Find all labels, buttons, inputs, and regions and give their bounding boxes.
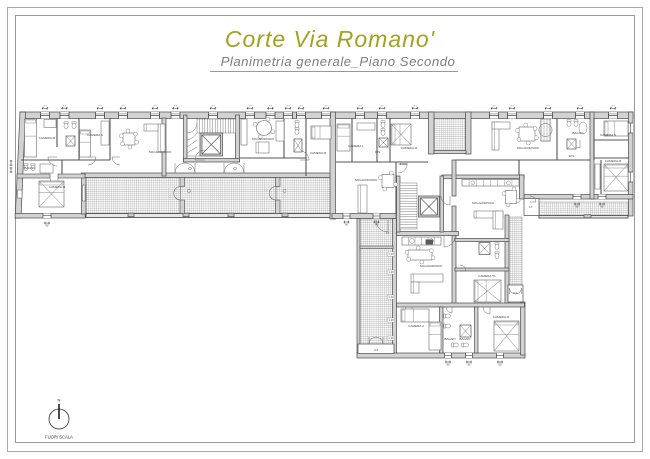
svg-text:1,10: 1,10	[388, 336, 394, 340]
svg-text:CAMERA M: CAMERA M	[49, 185, 66, 189]
svg-text:CAMERA S: CAMERA S	[87, 133, 103, 137]
svg-text:90: 90	[46, 225, 49, 228]
svg-text:1,10: 1,10	[388, 270, 394, 274]
svg-text:CAMERA L: CAMERA L	[348, 144, 364, 148]
svg-text:CAMERA M: CAMERA M	[605, 159, 622, 163]
svg-text:BAGNO: BAGNO	[572, 131, 584, 135]
svg-text:C3: C3	[374, 348, 378, 352]
svg-text:1,5: 1,5	[269, 105, 273, 107]
svg-text:CAMERA S: CAMERA S	[600, 133, 616, 137]
svg-text:1,5: 1,5	[510, 105, 514, 107]
svg-text:1,5: 1,5	[611, 105, 615, 107]
svg-text:BAGNO: BAGNO	[24, 166, 36, 170]
svg-text:1,5: 1,5	[174, 105, 178, 107]
svg-text:C2: C2	[513, 291, 517, 295]
svg-text:1,5: 1,5	[380, 105, 384, 107]
svg-text:1,5: 1,5	[63, 105, 67, 107]
svg-text:LT: LT	[386, 231, 389, 235]
svg-text:1,10: 1,10	[388, 318, 394, 322]
svg-text:SOGGIORNO/K: SOGGIORNO/K	[355, 178, 378, 182]
svg-text:CAMERA M: CAMERA M	[401, 146, 418, 150]
svg-text:BAGNO: BAGNO	[459, 337, 471, 341]
svg-text:1,10: 1,10	[388, 252, 394, 256]
svg-text:FUORI SCALA: FUORI SCALA	[45, 435, 73, 440]
svg-text:N: N	[58, 398, 61, 403]
svg-text:1,5: 1,5	[211, 105, 215, 107]
svg-text:CAMERA M: CAMERA M	[493, 315, 510, 319]
svg-text:CAMERA M: CAMERA M	[310, 151, 327, 155]
svg-text:1,5: 1,5	[248, 105, 252, 107]
svg-text:SOGGIORNO/K: SOGGIORNO/K	[517, 146, 540, 150]
svg-text:SOGGIORNO/K: SOGGIORNO/K	[149, 150, 172, 154]
svg-text:1,5: 1,5	[324, 105, 328, 107]
svg-text:1,5: 1,5	[153, 105, 157, 107]
svg-text:90: 90	[499, 364, 502, 367]
svg-text:90: 90	[468, 364, 471, 367]
svg-text:1,5: 1,5	[492, 105, 496, 107]
svg-text:CAMERA T1: CAMERA T1	[478, 274, 496, 278]
svg-text:LT: LT	[529, 205, 532, 209]
svg-text:DIS.: DIS.	[569, 154, 575, 158]
svg-text:DIS.: DIS.	[375, 150, 381, 154]
svg-text:CAMERA 2: CAMERA 2	[408, 324, 424, 328]
svg-text:1,5: 1,5	[358, 105, 362, 107]
svg-text:SOGGIORNO/K: SOGGIORNO/K	[420, 264, 443, 268]
svg-text:1,5: 1,5	[98, 105, 102, 107]
svg-text:1,10: 1,10	[388, 295, 394, 299]
svg-text:1,5: 1,5	[121, 105, 125, 107]
svg-text:INGR.: INGR.	[400, 162, 409, 166]
svg-text:1,5: 1,5	[578, 105, 582, 107]
svg-text:CAMERA M: CAMERA M	[39, 136, 56, 140]
svg-text:SOGGIORNO/K: SOGGIORNO/K	[472, 201, 495, 205]
svg-text:SOGGIORNO/K: SOGGIORNO/K	[252, 137, 275, 141]
svg-text:90: 90	[345, 224, 348, 227]
svg-text:90: 90	[447, 364, 450, 367]
svg-text:1,5: 1,5	[413, 105, 417, 107]
svg-text:1,5: 1,5	[546, 105, 550, 107]
svg-text:BAGNO: BAGNO	[444, 337, 456, 341]
svg-text:1,5: 1,5	[43, 105, 47, 107]
svg-text:1,5: 1,5	[286, 105, 290, 107]
svg-text:1,5: 1,5	[299, 105, 303, 107]
